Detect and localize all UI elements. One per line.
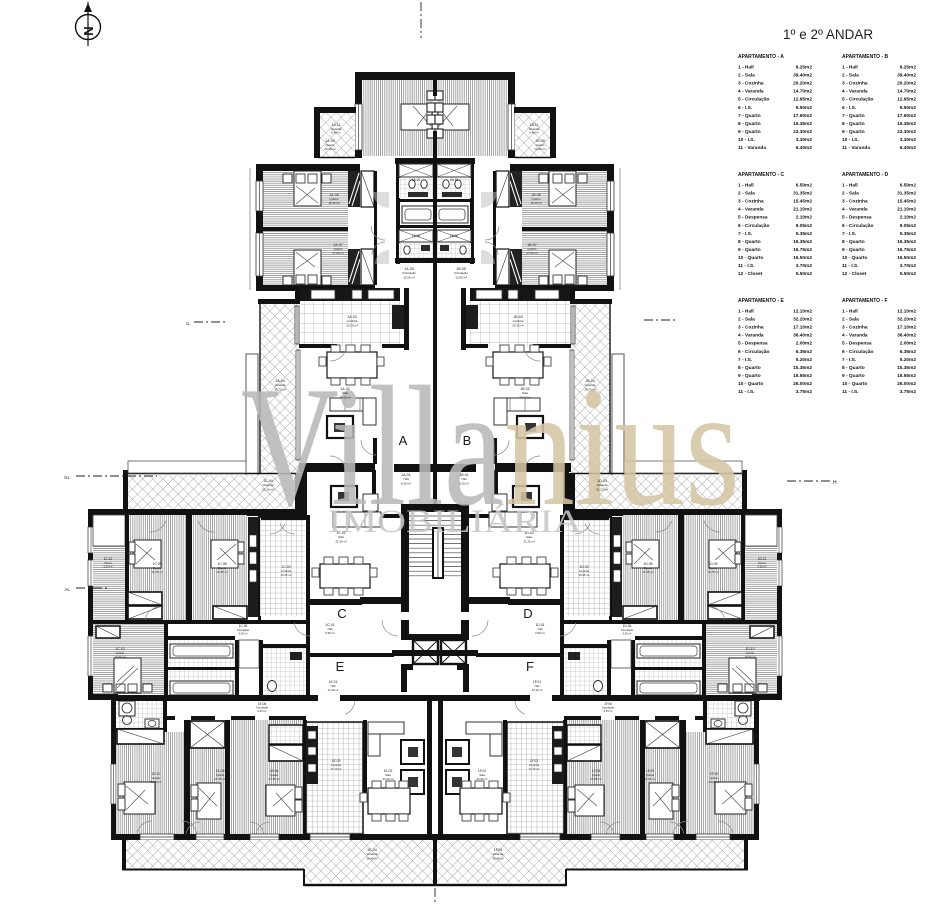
svg-text:IL: IL (186, 321, 190, 326)
svg-text:B: B (463, 433, 472, 448)
svg-text:1D.12: 1D.12 (758, 557, 767, 561)
svg-text:15.45m2: 15.45m2 (793, 199, 812, 205)
svg-text:4 - Varanda: 4 - Varanda (738, 89, 764, 95)
svg-text:9 - Quarto: 9 - Quarto (738, 129, 761, 135)
svg-text:1 - Hall: 1 - Hall (842, 309, 858, 315)
svg-text:8.25m2: 8.25m2 (796, 65, 813, 71)
svg-text:11 - I.S.: 11 - I.S. (738, 389, 755, 395)
svg-text:26.00 m²: 26.00 m² (151, 780, 162, 784)
svg-text:17.60m2: 17.60m2 (897, 113, 916, 119)
svg-text:16.75 m²: 16.75 m² (152, 570, 163, 574)
svg-text:D: D (523, 606, 532, 621)
svg-text:6.40m2: 6.40m2 (796, 145, 813, 151)
svg-text:3.70m2: 3.70m2 (796, 263, 813, 269)
svg-text:9.05m2: 9.05m2 (900, 223, 917, 229)
svg-text:1C.12: 1C.12 (104, 557, 113, 561)
svg-text:2 - Sala: 2 - Sala (738, 317, 755, 323)
svg-text:16.75m2: 16.75m2 (793, 247, 812, 253)
svg-text:2 - Sala: 2 - Sala (738, 191, 755, 197)
svg-text:6 - Circulação: 6 - Circulação (842, 349, 874, 355)
svg-text:9 - Quarto: 9 - Quarto (842, 247, 865, 253)
svg-text:1E.06: 1E.06 (258, 702, 267, 706)
svg-text:16.50 m²: 16.50 m² (745, 655, 756, 659)
svg-text:5.35m2: 5.35m2 (796, 231, 813, 237)
svg-text:5.50m2: 5.50m2 (796, 271, 813, 277)
svg-text:16.35 m²: 16.35 m² (328, 201, 340, 205)
svg-text:1B.06: 1B.06 (450, 234, 459, 238)
svg-text:6.50m2: 6.50m2 (900, 183, 917, 189)
svg-text:9 - Quarto: 9 - Quarto (842, 129, 865, 135)
svg-text:5 - Despensa: 5 - Despensa (738, 341, 768, 347)
svg-text:1 - Hall: 1 - Hall (738, 183, 754, 189)
svg-text:39.40m2: 39.40m2 (897, 73, 916, 79)
svg-text:6 - Circulação: 6 - Circulação (738, 223, 770, 229)
svg-text:6 - I.S.: 6 - I.S. (842, 105, 856, 111)
svg-text:15.45m2: 15.45m2 (897, 199, 916, 205)
svg-text:Circulação: Circulação (237, 628, 250, 632)
svg-text:26.00m2: 26.00m2 (897, 381, 916, 387)
svg-text:6.40 m²: 6.40 m² (529, 131, 538, 135)
svg-text:9 - Quarto: 9 - Quarto (738, 247, 761, 253)
svg-text:Closet: Closet (104, 561, 112, 565)
svg-text:10 - Quarto: 10 - Quarto (738, 381, 763, 387)
svg-text:32.20 m²: 32.20 m² (383, 777, 394, 781)
svg-text:16.35m2: 16.35m2 (793, 121, 812, 127)
svg-text:17.10 m²: 17.10 m² (529, 767, 540, 771)
svg-text:12.95m2: 12.95m2 (793, 97, 812, 103)
svg-text:10 - Quarto: 10 - Quarto (842, 381, 867, 387)
svg-text:1º e 2º ANDAR: 1º e 2º ANDAR (783, 27, 873, 42)
svg-text:1C.06: 1C.06 (239, 624, 248, 628)
svg-text:36.40 m²: 36.40 m² (492, 856, 504, 860)
svg-text:3 - Cozinha: 3 - Cozinha (738, 81, 764, 87)
svg-text:3 - Cozinha: 3 - Cozinha (738, 325, 764, 331)
svg-text:23.30m2: 23.30m2 (793, 129, 812, 135)
svg-text:10 - Quarto: 10 - Quarto (738, 255, 763, 261)
svg-text:6.50 m²: 6.50 m² (535, 631, 544, 635)
svg-text:8 - Quarto: 8 - Quarto (738, 121, 761, 127)
svg-text:12.10 m²: 12.10 m² (328, 688, 339, 692)
svg-text:3.75m2: 3.75m2 (900, 389, 917, 395)
svg-text:15.45 m²: 15.45 m² (281, 573, 292, 577)
svg-text:12 - Closet: 12 - Closet (738, 271, 763, 277)
svg-text:16.50m2: 16.50m2 (897, 255, 916, 261)
svg-text:12.10m2: 12.10m2 (897, 309, 916, 315)
svg-text:8 - Quarto: 8 - Quarto (842, 365, 865, 371)
svg-text:16.50 m²: 16.50 m² (115, 655, 126, 659)
svg-text:16.35 m²: 16.35 m² (643, 570, 654, 574)
svg-text:4 - Varanda: 4 - Varanda (738, 207, 764, 213)
svg-text:IMOBILIÁRIA: IMOBILIÁRIA (328, 503, 582, 540)
svg-text:9.05 m²: 9.05 m² (623, 632, 632, 636)
svg-text:21.10m2: 21.10m2 (897, 207, 916, 213)
svg-text:8.25 m²: 8.25 m² (459, 481, 469, 485)
svg-text:16.35m2: 16.35m2 (793, 239, 812, 245)
svg-text:AL: AL (64, 587, 70, 592)
svg-text:15.35 m²: 15.35 m² (269, 777, 280, 781)
svg-text:9.05 m²: 9.05 m² (239, 632, 248, 636)
svg-text:16.55 m²: 16.55 m² (215, 777, 226, 781)
svg-text:17.10 m²: 17.10 m² (331, 767, 342, 771)
svg-text:8 - Quarto: 8 - Quarto (738, 365, 761, 371)
svg-text:1 - Hall: 1 - Hall (738, 309, 754, 315)
svg-text:17.60 m²: 17.60 m² (332, 251, 344, 255)
svg-text:11 - Varanda: 11 - Varanda (842, 145, 870, 151)
svg-text:26.00m2: 26.00m2 (793, 381, 812, 387)
svg-text:6.35m2: 6.35m2 (796, 349, 813, 355)
svg-text:36.40m2: 36.40m2 (897, 333, 916, 339)
svg-text:15.35 m²: 15.35 m² (591, 777, 602, 781)
svg-text:APARTAMENTO - A: APARTAMENTO - A (738, 54, 784, 60)
svg-text:26.00 m²: 26.00 m² (709, 780, 720, 784)
svg-text:2 - Sala: 2 - Sala (842, 191, 859, 197)
svg-text:16.50m2: 16.50m2 (793, 255, 812, 261)
svg-text:12.95 m²: 12.95 m² (403, 275, 415, 279)
svg-text:F: F (526, 659, 534, 674)
svg-text:11 - I.S.: 11 - I.S. (738, 263, 755, 269)
svg-text:16.55 m²: 16.55 m² (645, 777, 656, 781)
svg-text:17.60m2: 17.60m2 (793, 113, 812, 119)
svg-text:3.70m2: 3.70m2 (900, 263, 917, 269)
svg-text:5.50m2: 5.50m2 (796, 105, 813, 111)
svg-text:7 - I.S.: 7 - I.S. (842, 231, 856, 237)
svg-text:2 - Sala: 2 - Sala (738, 73, 755, 79)
svg-text:12.95m2: 12.95m2 (897, 97, 916, 103)
svg-text:21.10m2: 21.10m2 (793, 207, 812, 213)
svg-text:GL: GL (64, 475, 71, 480)
svg-text:1A.06: 1A.06 (412, 234, 421, 238)
svg-text:APARTAMENTO - B: APARTAMENTO - B (842, 54, 888, 60)
svg-text:7 - I.S.: 7 - I.S. (842, 357, 856, 363)
svg-text:14.70m2: 14.70m2 (897, 89, 916, 95)
svg-text:4 - Varanda: 4 - Varanda (842, 333, 868, 339)
svg-text:16.35 m²: 16.35 m² (530, 201, 542, 205)
svg-text:5 - Circulação: 5 - Circulação (738, 97, 770, 103)
svg-text:36.40 m²: 36.40 m² (366, 856, 378, 860)
svg-text:A: A (399, 433, 408, 448)
svg-text:1B.10: 1B.10 (450, 178, 459, 182)
svg-text:17.10m2: 17.10m2 (793, 325, 812, 331)
svg-text:1 - Hall: 1 - Hall (738, 65, 754, 71)
svg-text:5.20m2: 5.20m2 (796, 357, 813, 363)
svg-text:1A.10: 1A.10 (412, 178, 421, 182)
svg-text:20.20m2: 20.20m2 (793, 81, 812, 87)
svg-text:5.50 m²: 5.50 m² (758, 565, 767, 569)
svg-text:6.40 m²: 6.40 m² (331, 131, 340, 135)
svg-text:APARTAMENTO - D: APARTAMENTO - D (842, 172, 888, 178)
svg-text:3.75m2: 3.75m2 (796, 389, 813, 395)
svg-text:23.30 m²: 23.30 m² (324, 147, 336, 151)
svg-text:APARTAMENTO - E: APARTAMENTO - E (738, 298, 784, 304)
svg-text:7 - Quarto: 7 - Quarto (738, 113, 761, 119)
svg-text:3.30m2: 3.30m2 (900, 137, 917, 143)
svg-text:6 - Circulação: 6 - Circulação (738, 349, 770, 355)
svg-text:31.35 m²: 31.35 m² (335, 539, 347, 543)
svg-text:23.30m2: 23.30m2 (897, 129, 916, 135)
svg-text:10 - I.S.: 10 - I.S. (842, 137, 859, 143)
svg-text:21.10 m²: 21.10 m² (262, 487, 274, 491)
svg-text:8.25m2: 8.25m2 (900, 65, 917, 71)
svg-text:23.30 m²: 23.30 m² (534, 147, 546, 151)
svg-text:Circulação: Circulação (621, 628, 634, 632)
svg-text:4 - Varanda: 4 - Varanda (842, 207, 868, 213)
svg-text:32.20 m²: 32.20 m² (477, 777, 488, 781)
svg-text:12.95 m²: 12.95 m² (455, 275, 467, 279)
svg-text:8 - Quarto: 8 - Quarto (842, 239, 865, 245)
svg-text:14.70 m²: 14.70 m² (584, 387, 596, 391)
svg-text:2.00m2: 2.00m2 (900, 341, 917, 347)
svg-text:15.45 m²: 15.45 m² (579, 573, 590, 577)
svg-text:2.10m2: 2.10m2 (796, 215, 813, 221)
svg-text:5 - Circulação: 5 - Circulação (842, 97, 874, 103)
svg-text:16.35 m²: 16.35 m² (217, 570, 228, 574)
svg-text:16.35m2: 16.35m2 (897, 121, 916, 127)
svg-text:16.75m2: 16.75m2 (897, 247, 916, 253)
svg-text:E: E (336, 659, 345, 674)
svg-text:6.50m2: 6.50m2 (796, 183, 813, 189)
svg-text:N: N (81, 26, 96, 35)
svg-text:8 - Quarto: 8 - Quarto (738, 239, 761, 245)
svg-text:Circulação: Circulação (602, 706, 615, 710)
svg-text:17.10m2: 17.10m2 (897, 325, 916, 331)
svg-text:15.35m2: 15.35m2 (793, 365, 812, 371)
svg-text:14.70 m²: 14.70 m² (274, 387, 286, 391)
svg-text:20.20 m²: 20.20 m² (346, 323, 358, 327)
svg-text:32.20m2: 32.20m2 (897, 317, 916, 323)
svg-text:32.20m2: 32.20m2 (793, 317, 812, 323)
svg-text:16.35m2: 16.35m2 (897, 239, 916, 245)
svg-text:11 - Varanda: 11 - Varanda (738, 145, 766, 151)
svg-text:7 - Quarto: 7 - Quarto (842, 113, 865, 119)
svg-text:1 - Hall: 1 - Hall (842, 183, 858, 189)
svg-text:4 - Varanda: 4 - Varanda (738, 333, 764, 339)
svg-text:6.35 m²: 6.35 m² (604, 709, 613, 713)
svg-text:39.40 m²: 39.40 m² (519, 395, 531, 399)
svg-text:5.20m2: 5.20m2 (900, 357, 917, 363)
svg-text:31.35m2: 31.35m2 (897, 191, 916, 197)
svg-text:2 - Sala: 2 - Sala (842, 317, 859, 323)
svg-text:20.20m2: 20.20m2 (897, 81, 916, 87)
svg-text:2 - Sala: 2 - Sala (842, 73, 859, 79)
svg-text:10 - Quarto: 10 - Quarto (842, 255, 867, 261)
svg-text:15.35m2: 15.35m2 (897, 365, 916, 371)
svg-text:6.35 m²: 6.35 m² (258, 709, 267, 713)
svg-text:8.25 m²: 8.25 m² (401, 481, 411, 485)
svg-text:Closet: Closet (758, 561, 766, 565)
svg-text:17.60 m²: 17.60 m² (526, 251, 538, 255)
svg-text:1F.06: 1F.06 (604, 702, 612, 706)
svg-text:31.35 m²: 31.35 m² (523, 539, 535, 543)
svg-text:3 - Cozinha: 3 - Cozinha (842, 325, 868, 331)
svg-text:5 - Despensa: 5 - Despensa (842, 341, 872, 347)
svg-text:1D.06: 1D.06 (623, 624, 632, 628)
svg-text:9 - Quarto: 9 - Quarto (738, 373, 761, 379)
svg-text:6.40m2: 6.40m2 (900, 145, 917, 151)
svg-text:20.20 m²: 20.20 m² (512, 323, 524, 327)
svg-text:12.10 m²: 12.10 m² (532, 688, 543, 692)
svg-text:APARTAMENTO - C: APARTAMENTO - C (738, 172, 784, 178)
svg-text:11 - I.S.: 11 - I.S. (842, 389, 859, 395)
svg-text:3 - Cozinha: 3 - Cozinha (842, 199, 868, 205)
svg-text:16.75 m²: 16.75 m² (708, 570, 719, 574)
svg-text:2.00m2: 2.00m2 (796, 341, 813, 347)
svg-text:3 - Cozinha: 3 - Cozinha (738, 199, 764, 205)
svg-text:H: H (833, 480, 837, 486)
svg-text:14.70m2: 14.70m2 (793, 89, 812, 95)
svg-text:Circulação: Circulação (256, 706, 269, 710)
svg-text:7 - I.S.: 7 - I.S. (738, 357, 752, 363)
svg-text:10 - I.S.: 10 - I.S. (738, 137, 755, 143)
svg-text:6 - I.S.: 6 - I.S. (738, 105, 752, 111)
svg-text:12 - Closet: 12 - Closet (842, 271, 867, 277)
svg-text:16.55m2: 16.55m2 (793, 373, 812, 379)
svg-text:5 - Despensa: 5 - Despensa (738, 215, 768, 221)
svg-text:36.40m2: 36.40m2 (793, 333, 812, 339)
svg-text:31.35m2: 31.35m2 (793, 191, 812, 197)
svg-text:9.05m2: 9.05m2 (796, 223, 813, 229)
svg-text:6.50 m²: 6.50 m² (325, 631, 334, 635)
svg-text:5.50m2: 5.50m2 (900, 271, 917, 277)
svg-text:39.40m2: 39.40m2 (793, 73, 812, 79)
svg-text:4 - Varanda: 4 - Varanda (842, 89, 868, 95)
svg-text:9 - Quarto: 9 - Quarto (842, 373, 865, 379)
svg-text:16.55m2: 16.55m2 (897, 373, 916, 379)
svg-text:39.40 m²: 39.40 m² (339, 395, 351, 399)
svg-text:7 - I.S.: 7 - I.S. (738, 231, 752, 237)
svg-text:1 - Hall: 1 - Hall (842, 65, 858, 71)
svg-text:APARTAMENTO - F: APARTAMENTO - F (842, 298, 888, 304)
svg-text:3.30m2: 3.30m2 (796, 137, 813, 143)
svg-text:8 - Quarto: 8 - Quarto (842, 121, 865, 127)
svg-text:6 - Circulação: 6 - Circulação (842, 223, 874, 229)
svg-text:21.10 m²: 21.10 m² (596, 487, 608, 491)
svg-text:11 - I.S.: 11 - I.S. (842, 263, 859, 269)
svg-text:3 - Cozinha: 3 - Cozinha (842, 81, 868, 87)
svg-text:5 - Despensa: 5 - Despensa (842, 215, 872, 221)
svg-text:5.50m2: 5.50m2 (900, 105, 917, 111)
svg-text:5.35m2: 5.35m2 (900, 231, 917, 237)
svg-text:5.50 m²: 5.50 m² (104, 565, 113, 569)
svg-text:12.10m2: 12.10m2 (793, 309, 812, 315)
svg-text:2.10m2: 2.10m2 (900, 215, 917, 221)
svg-text:C: C (337, 606, 346, 621)
svg-text:6.35m2: 6.35m2 (900, 349, 917, 355)
